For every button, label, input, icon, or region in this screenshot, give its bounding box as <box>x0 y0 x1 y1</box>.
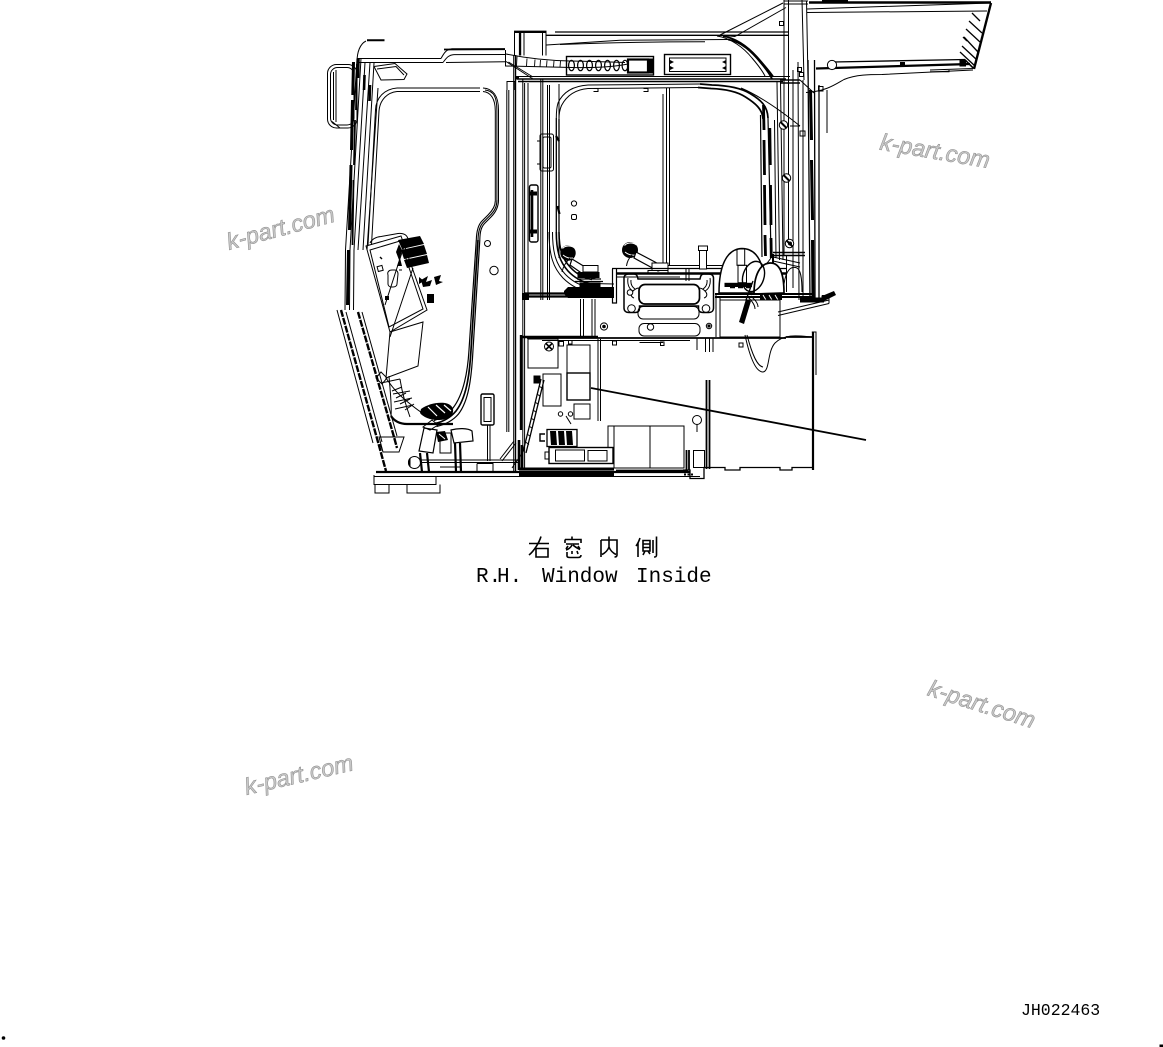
svg-text:k-part.com: k-part.com <box>878 129 992 173</box>
svg-text:k-part.com: k-part.com <box>925 675 1039 733</box>
svg-text:k-part.com: k-part.com <box>242 750 356 800</box>
svg-text:H.: H. <box>497 566 522 589</box>
svg-text:Inside: Inside <box>636 566 712 589</box>
svg-text:Window: Window <box>542 566 618 589</box>
svg-text:JH022463: JH022463 <box>1021 1001 1100 1020</box>
svg-text:k-part.com: k-part.com <box>224 201 338 255</box>
